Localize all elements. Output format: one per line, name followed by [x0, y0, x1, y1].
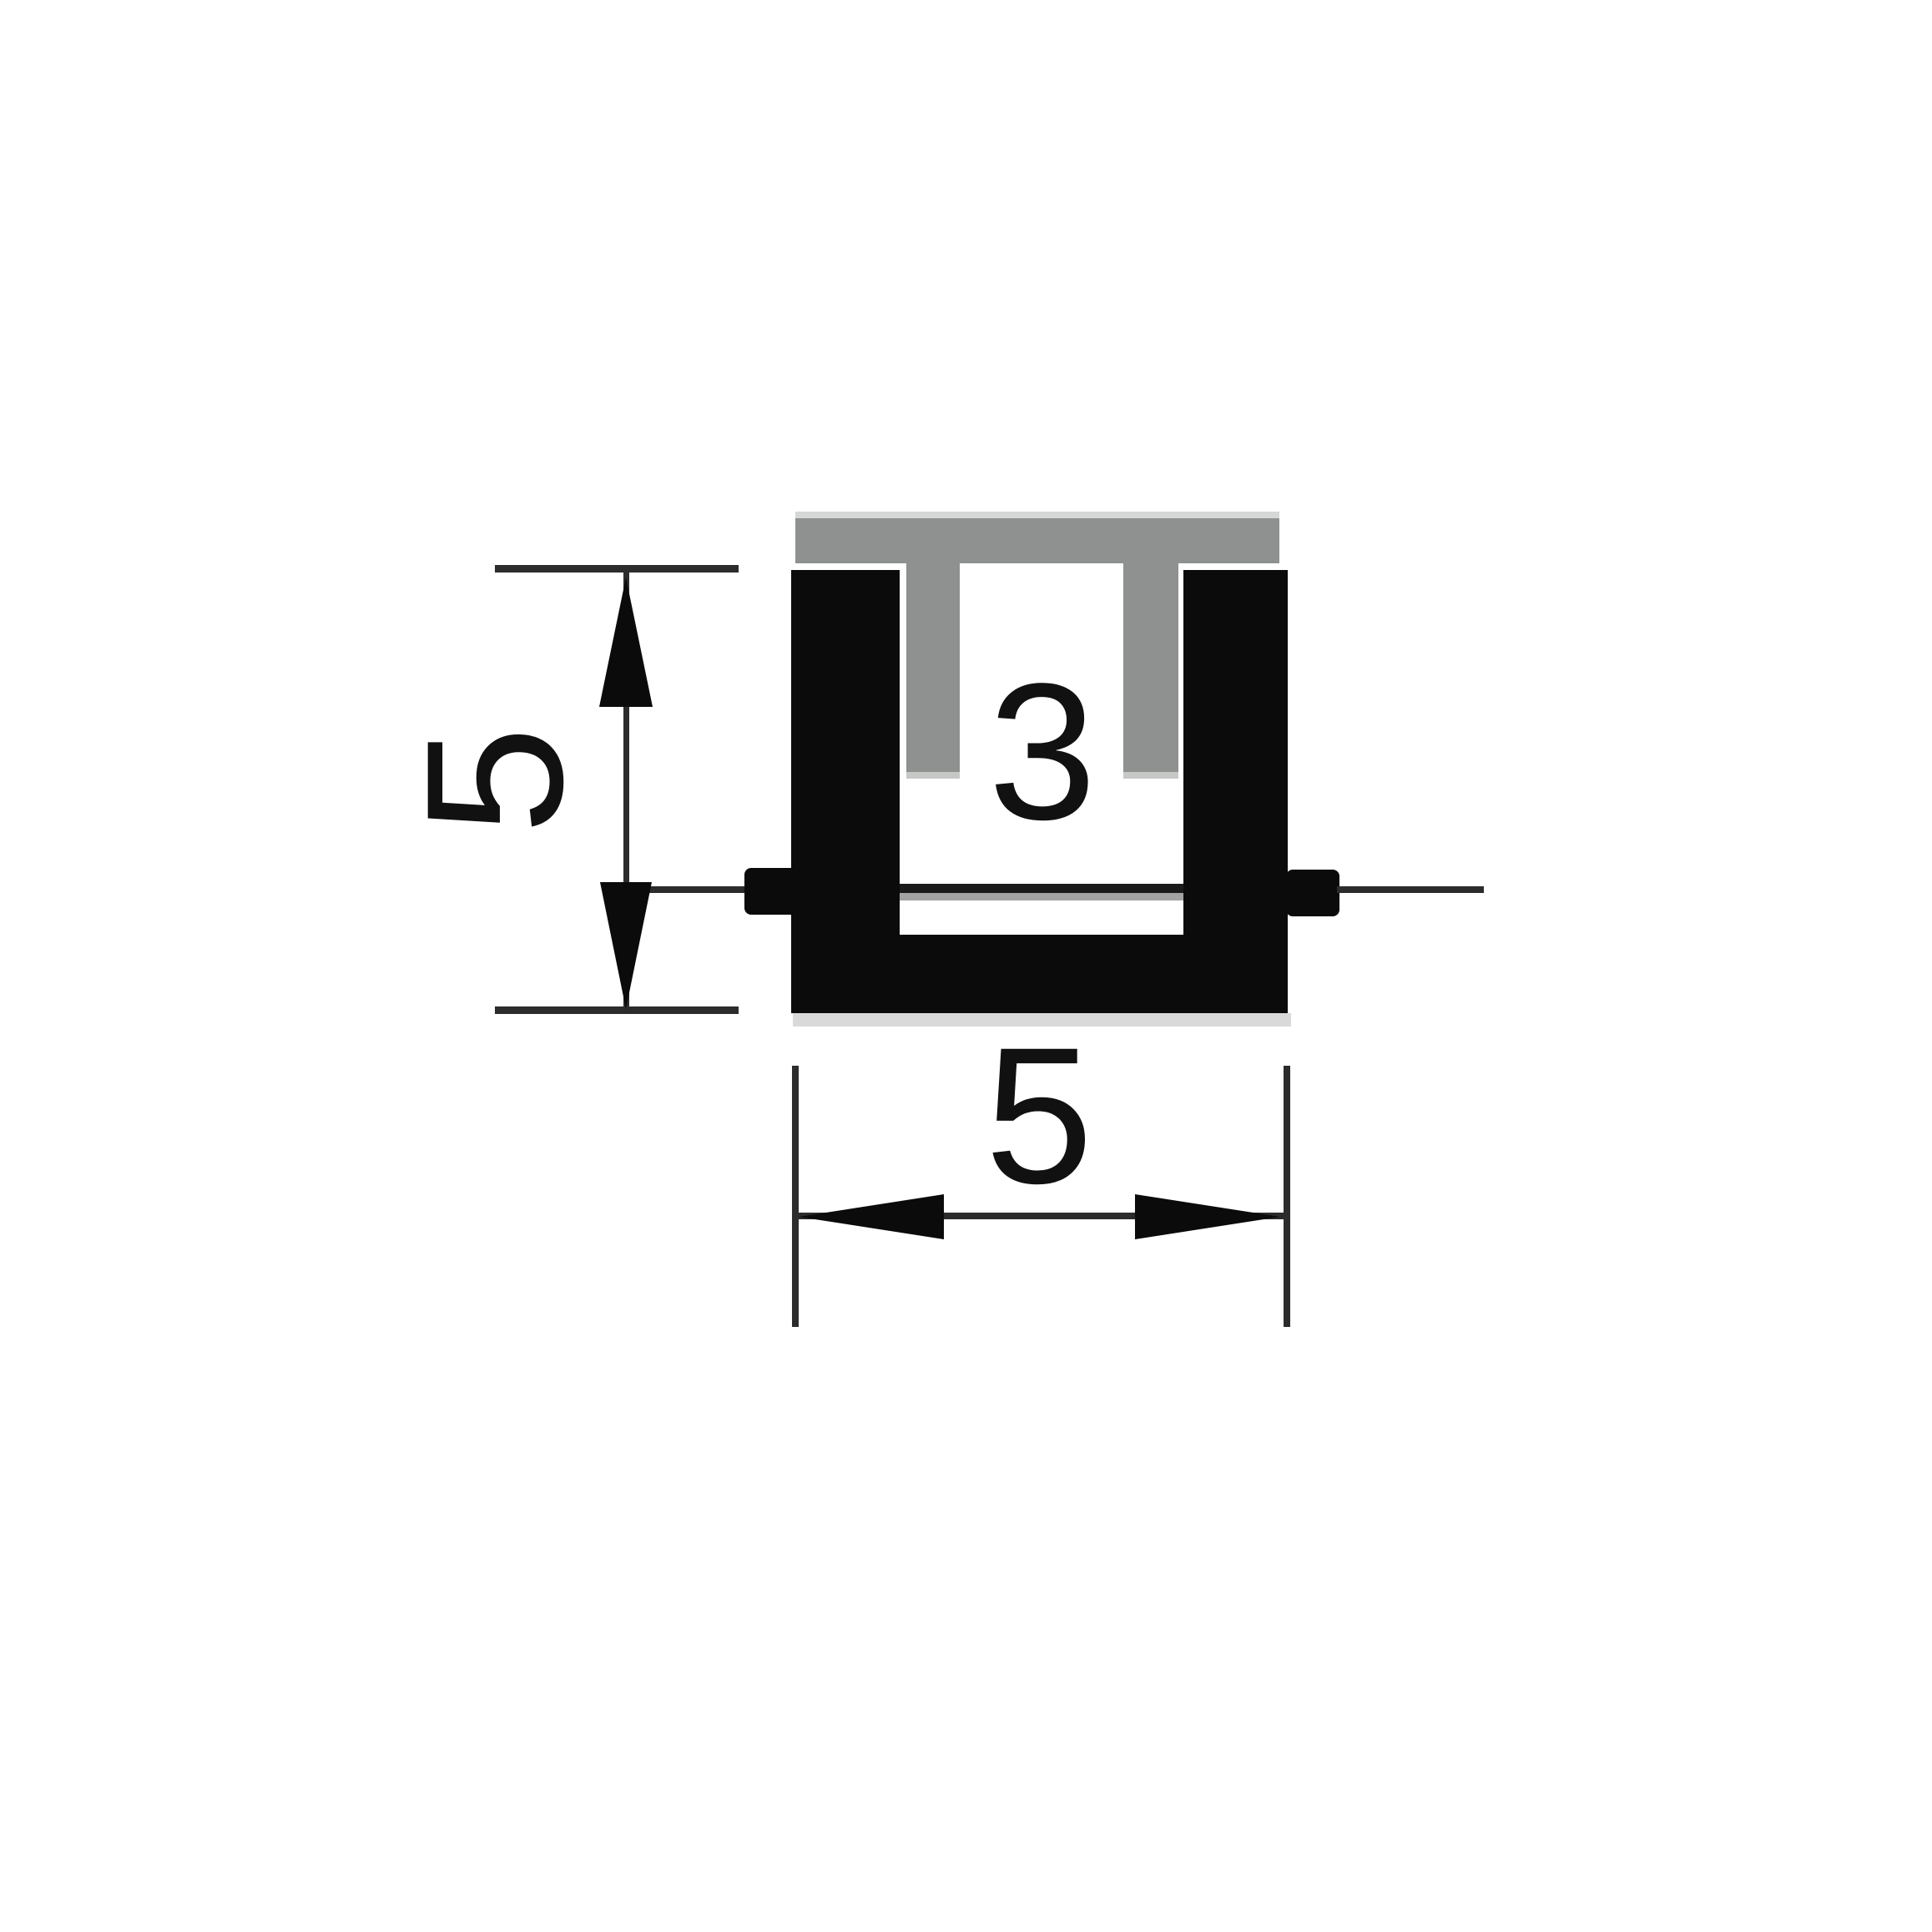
drawing-canvas: 5 5 3: [0, 0, 1932, 1932]
height-dim-tick-bottom: [495, 1006, 739, 1014]
height-dim-tick-top: [495, 565, 739, 573]
groove-width-label: 3: [934, 643, 1151, 860]
insert-cap-bar: [795, 512, 1279, 563]
width-dim-label: 5: [931, 1007, 1148, 1224]
width-dim-tick-right: [1284, 1066, 1290, 1327]
profile-wall-bottom: [791, 935, 1288, 1013]
height-dim-arrow-down-icon: [600, 882, 652, 1009]
width-dim-arrow-left-icon: [799, 1194, 944, 1239]
centerline-right-segment: [1337, 886, 1484, 893]
width-dim-tick-left: [792, 1066, 799, 1327]
width-dim-arrow-right-icon: [1135, 1194, 1280, 1239]
profile-side-tab-left: [744, 868, 798, 915]
centerline-inner-segment: [900, 884, 1183, 893]
height-dim-arrow-up-icon: [599, 578, 653, 707]
groove-bottom-line: [900, 893, 1183, 900]
profile-side-tab-right: [1286, 870, 1339, 916]
height-dim-label: 5: [386, 672, 603, 889]
